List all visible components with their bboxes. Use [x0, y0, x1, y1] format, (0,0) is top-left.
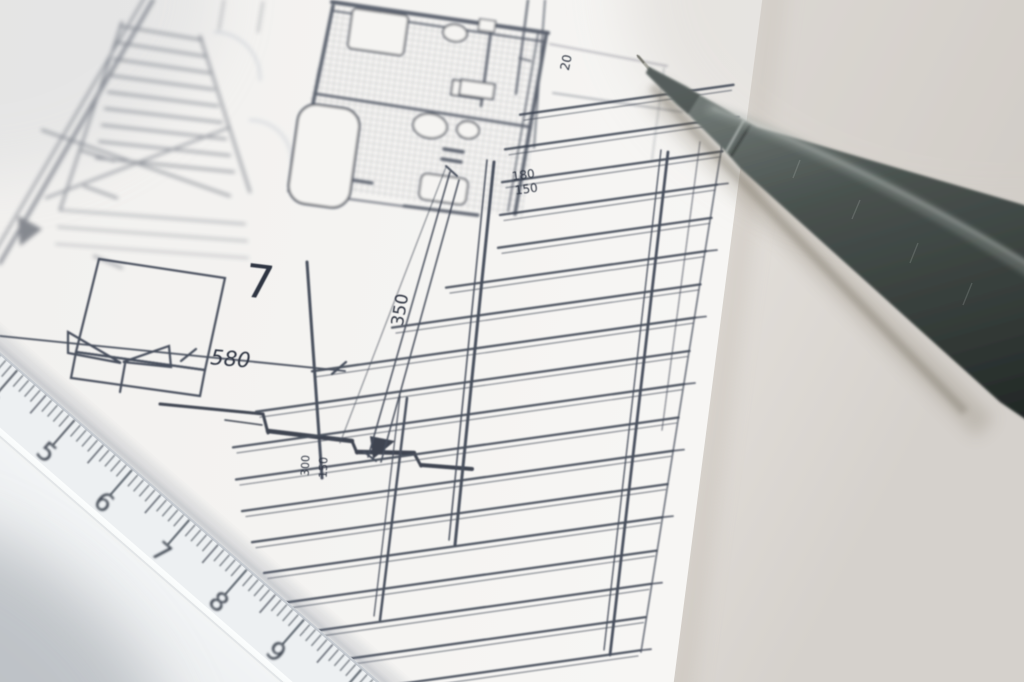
dim-580-label: 580: [209, 345, 251, 372]
deck-plank-end-stub: [662, 516, 673, 517]
deck-plank-end-stub: [640, 649, 651, 650]
shower-fixture: [347, 8, 408, 55]
deck-plank-end-stub: [706, 250, 717, 251]
dim-300-label: 300: [299, 455, 313, 476]
deck-plank-end-stub: [651, 583, 662, 584]
architectural-plan-photo: 7 580 350 300 150 180 150 20 4 5 6 7 8 9: [0, 0, 1024, 682]
bathtub: [286, 102, 361, 210]
deck-plank-end-stub: [695, 317, 706, 318]
scene-canvas: 7 580 350 300 150 180 150 20 4 5 6 7 8 9: [0, 0, 1024, 682]
deck-plank-end-stub: [684, 383, 695, 384]
dim-150-label: 150: [317, 457, 331, 478]
bidet-fixture: [418, 173, 468, 205]
small-fixture: [478, 19, 495, 32]
deck-plank-end-stub: [673, 450, 684, 451]
